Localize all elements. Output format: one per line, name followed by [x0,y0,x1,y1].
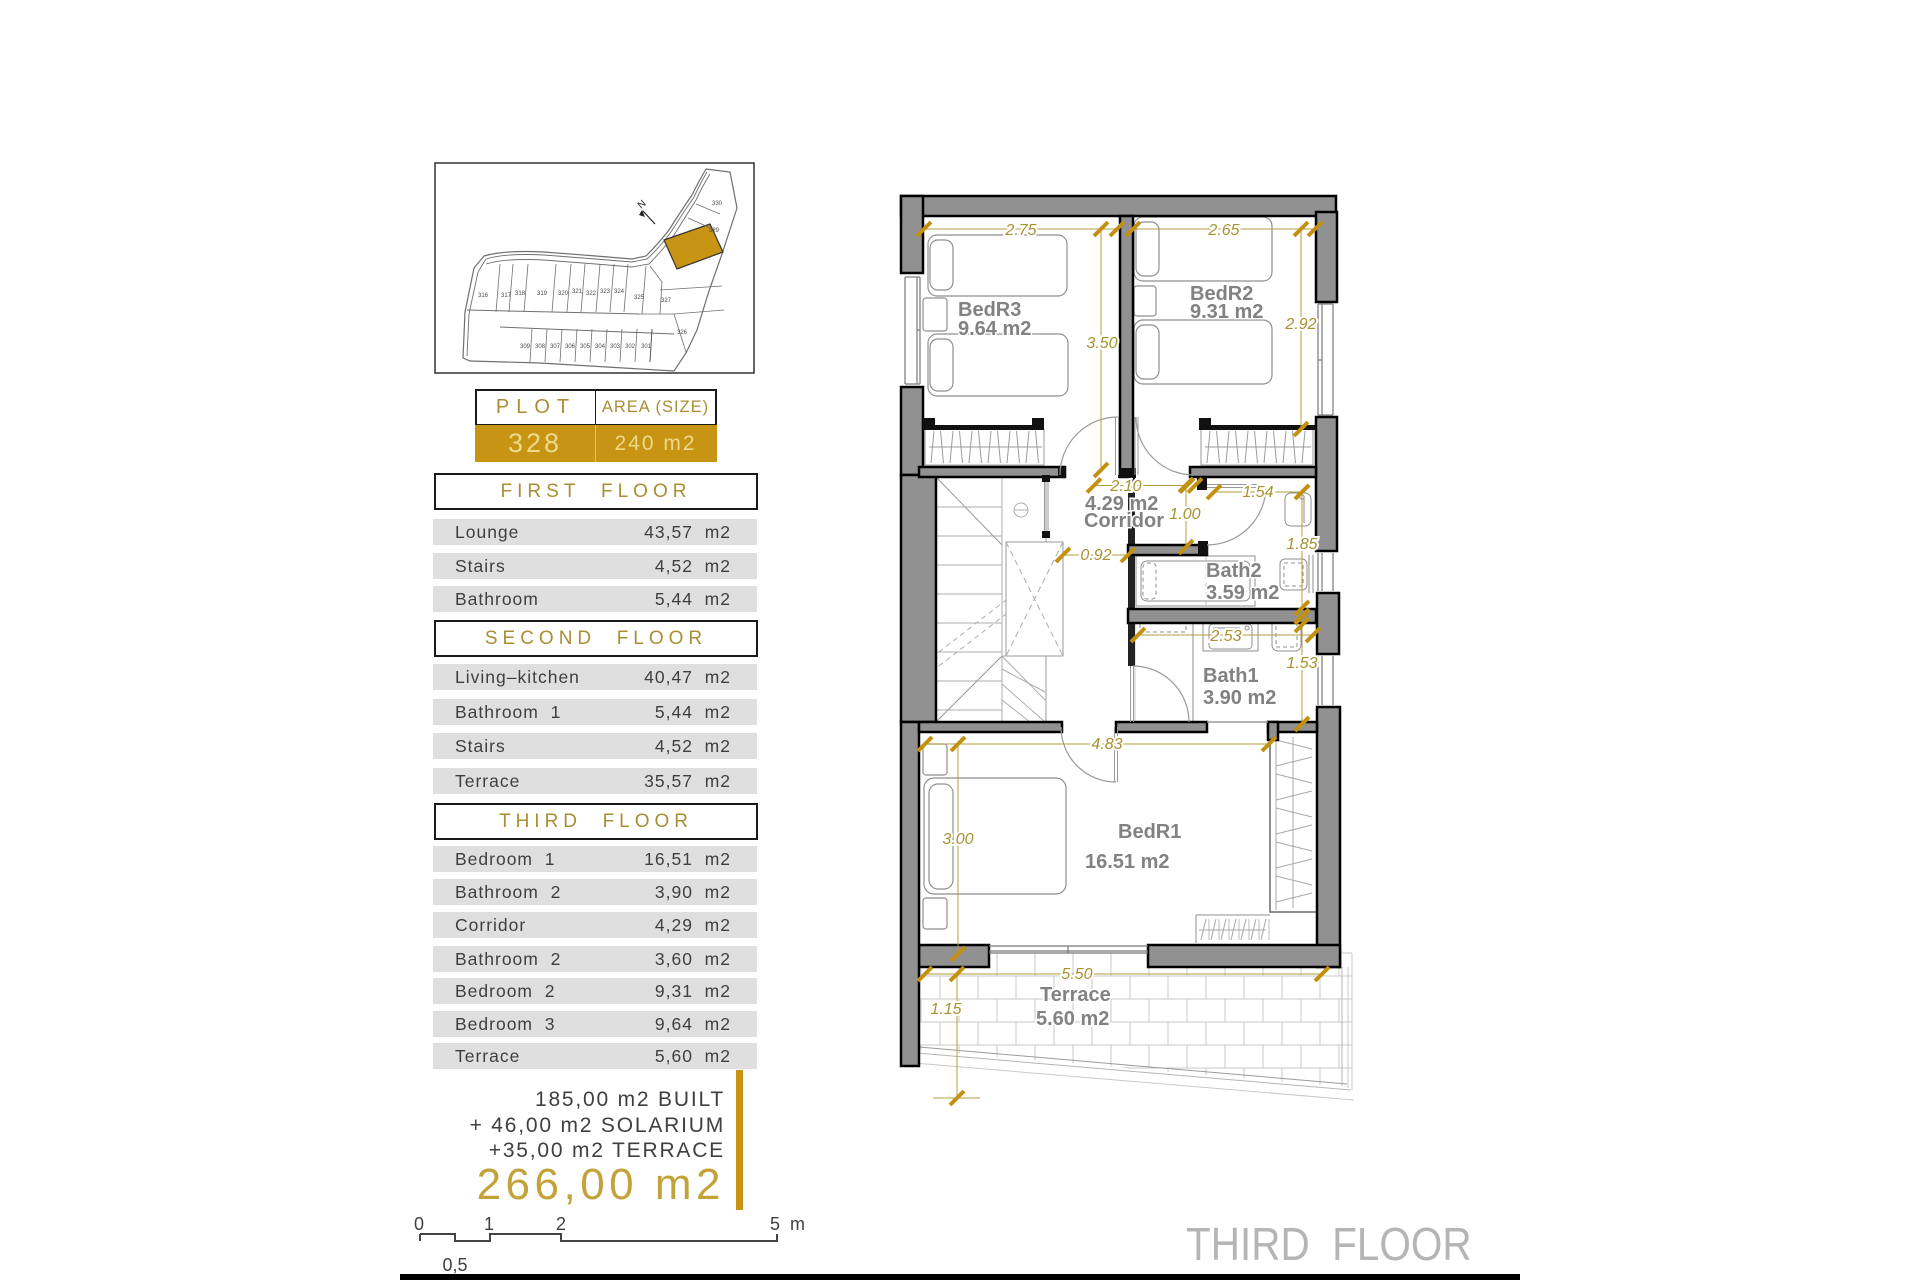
svg-text:4.83: 4.83 [1091,736,1122,753]
svg-text:302: 302 [625,344,636,350]
svg-text:329: 329 [709,228,720,234]
svg-text:2.75: 2.75 [1004,222,1036,239]
svg-text:3.50: 3.50 [1086,335,1117,352]
svg-text:0,5: 0,5 [442,1255,467,1275]
svg-text:3.59 m2: 3.59 m2 [1206,582,1279,604]
svg-text:1.53: 1.53 [1286,655,1317,672]
svg-text:BedR1: BedR1 [1118,821,1181,843]
svg-text:9.31 m2: 9.31 m2 [1190,301,1263,323]
svg-text:303: 303 [610,344,621,350]
svg-text:321: 321 [572,289,583,295]
svg-text:Bath1: Bath1 [1203,665,1259,687]
svg-text:316: 316 [478,293,489,299]
svg-text:1: 1 [484,1214,494,1234]
svg-text:3.90 m2: 3.90 m2 [1203,687,1276,709]
svg-text:0: 0 [414,1214,424,1234]
svg-text:322: 322 [586,291,597,297]
svg-text:324: 324 [614,289,625,295]
svg-text:308: 308 [535,344,546,350]
svg-text:9.64 m2: 9.64 m2 [958,318,1031,340]
svg-text:m: m [790,1214,805,1234]
svg-text:309: 309 [520,344,531,350]
svg-text:2.53: 2.53 [1209,628,1241,645]
svg-text:301: 301 [641,344,652,350]
svg-text:0.92: 0.92 [1080,547,1111,564]
svg-text:319: 319 [537,291,548,297]
svg-text:1.54: 1.54 [1242,484,1273,501]
svg-text:Bath2: Bath2 [1206,560,1262,582]
svg-text:16.51 m2: 16.51 m2 [1085,851,1170,873]
svg-text:305: 305 [580,344,591,350]
svg-text:1.15: 1.15 [930,1001,961,1018]
svg-text:5.50: 5.50 [1061,966,1092,983]
svg-text:327: 327 [661,298,672,304]
svg-text:1.85: 1.85 [1286,536,1317,553]
svg-text:2.65: 2.65 [1207,222,1239,239]
svg-text:2.92: 2.92 [1284,316,1316,333]
svg-text:Corridor: Corridor [1084,510,1164,532]
svg-text:320: 320 [558,291,569,297]
svg-text:323: 323 [600,289,611,295]
svg-text:317: 317 [501,293,512,299]
svg-text:326: 326 [677,330,688,336]
svg-text:2: 2 [556,1214,566,1234]
svg-text:306: 306 [565,344,576,350]
svg-text:3.00: 3.00 [942,831,973,848]
svg-text:330: 330 [712,201,723,207]
svg-text:325: 325 [634,295,645,301]
svg-text:5.60 m2: 5.60 m2 [1036,1008,1109,1030]
svg-text:304: 304 [595,344,606,350]
svg-text:5: 5 [770,1214,780,1234]
svg-text:Terrace: Terrace [1040,984,1111,1006]
svg-text:307: 307 [550,344,561,350]
svg-text:1.00: 1.00 [1169,506,1200,523]
svg-text:318: 318 [515,291,526,297]
